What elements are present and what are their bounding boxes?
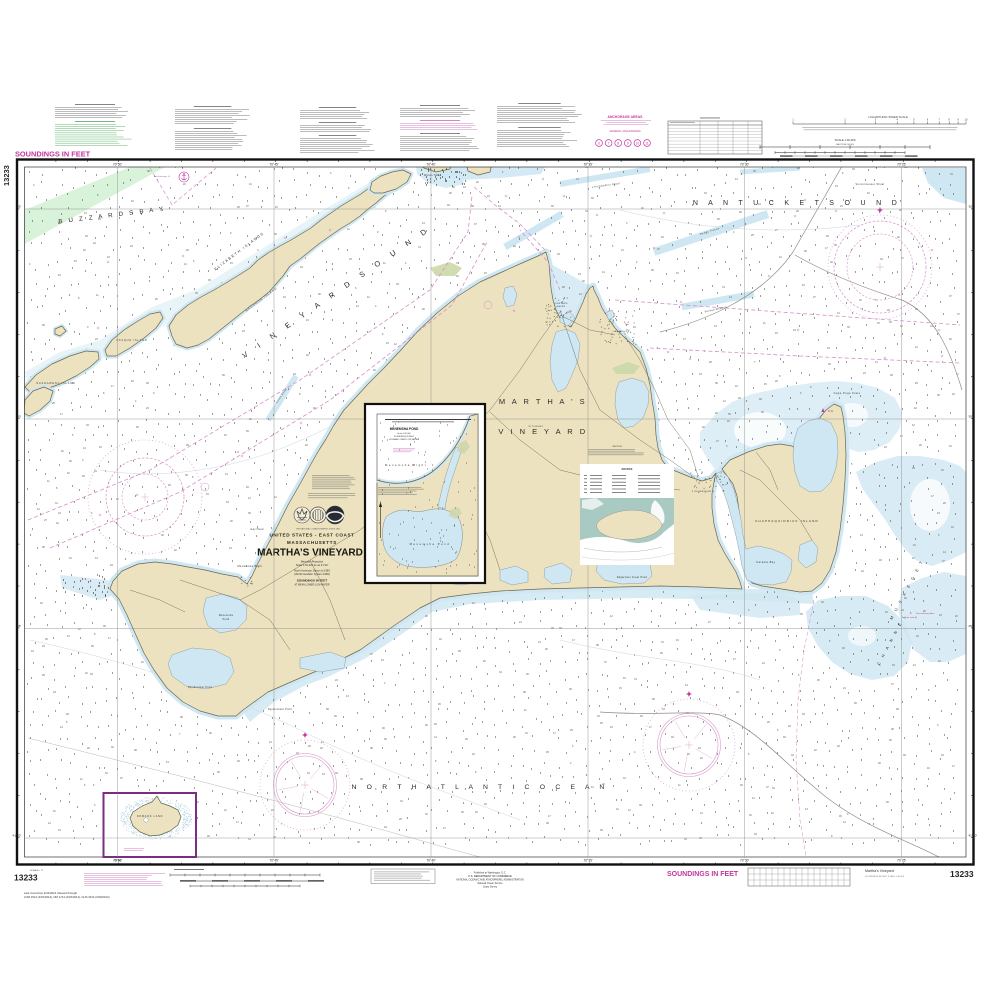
svg-text:SOURCE: SOURCE: [621, 467, 632, 471]
svg-text:(World Geodetic System 1984): (World Geodetic System 1984): [294, 572, 330, 576]
svg-text:UNITED STATES - EAST COAST: UNITED STATES - EAST COAST: [269, 533, 354, 538]
svg-text:25': 25': [17, 624, 21, 628]
svg-text:Woods Hole: Woods Hole: [424, 174, 440, 177]
svg-text:Menemsha Pond: Menemsha Pond: [410, 542, 451, 546]
svg-text:Succonnesset Shoal: Succonnesset Shoal: [856, 183, 885, 186]
svg-text:41°20': 41°20': [13, 834, 22, 838]
svg-text:PASQUE ISLAND: PASQUE ISLAND: [116, 338, 147, 342]
svg-text:CHAPPAQUIDDICK ISLAND: CHAPPAQUIDDICK ISLAND: [755, 519, 819, 523]
svg-text:70°45': 70°45': [270, 163, 279, 167]
svg-text:W TISBURY: W TISBURY: [529, 426, 544, 428]
svg-text:9: 9: [627, 141, 629, 145]
svg-text:HAVEN: HAVEN: [557, 305, 566, 308]
svg-text:GENERAL ANCHORAGES: GENERAL ANCHORAGES: [609, 129, 641, 133]
svg-text:SCALE 1:40,000: SCALE 1:40,000: [835, 138, 856, 142]
svg-text:70°45': 70°45': [270, 859, 279, 863]
svg-text:V I N E Y A R D: V I N E Y A R D: [498, 427, 587, 436]
svg-text:Gay Head: Gay Head: [250, 528, 264, 531]
svg-text:Edgartown Great Pond: Edgartown Great Pond: [617, 576, 648, 579]
svg-text:70°25': 70°25': [897, 859, 906, 863]
svg-text:VINEYARD: VINEYARD: [554, 302, 568, 305]
svg-text:AT MEAN LOWER LOW WATER: AT MEAN LOWER LOW WATER: [389, 438, 419, 441]
svg-text:ANCHORAGE AREAS: ANCHORAGE AREAS: [608, 115, 644, 119]
svg-text:7: 7: [608, 141, 610, 145]
svg-text:30': 30': [17, 415, 21, 419]
svg-text:SOUNDINGS IN FEET: SOUNDINGS IN FEET: [394, 436, 415, 438]
svg-text:Martha’s Vineyard: Martha’s Vineyard: [865, 869, 894, 873]
svg-text:13233: 13233: [950, 869, 974, 879]
svg-text:Coast Survey: Coast Survey: [483, 886, 498, 889]
svg-text:Mercator Projection: Mercator Projection: [301, 560, 324, 564]
svg-text:70°50': 70°50': [113, 163, 122, 167]
svg-text:M A R T H A ' S: M A R T H A ' S: [499, 397, 587, 406]
svg-text:70°35': 70°35': [584, 859, 593, 863]
svg-text:Menemsha: Menemsha: [219, 614, 234, 617]
svg-text:NOMANS LAND: NOMANS LAND: [137, 815, 163, 818]
svg-text:U.S. DEPARTMENT OF COMMERCE: U.S. DEPARTMENT OF COMMERCE: [468, 874, 512, 878]
svg-text:SOUNDINGS IN FEET: SOUNDINGS IN FEET: [297, 579, 328, 583]
svg-text:70°49’: 70°49’: [114, 859, 122, 863]
svg-text:25': 25': [969, 624, 973, 628]
svg-text:Cape Poge Flats: Cape Poge Flats: [834, 391, 861, 395]
svg-text:Menemsha Bight: Menemsha Bight: [385, 463, 427, 467]
svg-text:Squibnocket Point: Squibnocket Point: [268, 708, 292, 711]
svg-text:70°40': 70°40': [427, 163, 436, 167]
svg-text:(see note A): (see note A): [905, 616, 917, 619]
svg-text:MASSACHUSETTS: MASSACHUSETTS: [287, 540, 337, 545]
svg-text:70°35': 70°35': [584, 163, 593, 167]
svg-text:N O R T H A T L A N T I C: N O R T H A T L A N T I C O C E A N: [351, 784, 608, 791]
svg-text:11: 11: [645, 141, 649, 145]
svg-text:SOUNDINGS IN FEET: SOUNDINGS IN FEET: [15, 150, 91, 159]
svg-text:Squibnocket Pond: Squibnocket Pond: [188, 686, 213, 689]
svg-text:Katama Bay: Katama Bay: [756, 560, 775, 564]
svg-text:35': 35': [17, 205, 21, 209]
svg-text:Scale 1:20,000: Scale 1:20,000: [397, 433, 411, 435]
svg-text:SOUNDINGS IN FEET SCALE 1:40,: SOUNDINGS IN FEET SCALE 1:40,000: [865, 875, 905, 878]
svg-text:Anchorage G: Anchorage G: [154, 175, 170, 178]
svg-text:MARTHA’S VINEYARD: MARTHA’S VINEYARD: [257, 548, 363, 559]
svg-text:70°40': 70°40': [427, 859, 436, 863]
svg-text:Pond: Pond: [223, 618, 230, 621]
svg-text:AT MEAN LOWER LOW WATER: AT MEAN LOWER LOW WATER: [295, 584, 330, 587]
svg-text:Precautionary Area: Precautionary Area: [916, 612, 935, 615]
svg-text:8: 8: [617, 141, 619, 145]
svg-text:41°20': 41°20': [969, 834, 978, 838]
svg-text:OAK BLUFFS: OAK BLUFFS: [613, 330, 630, 333]
svg-text:70°30': 70°30': [740, 163, 749, 167]
svg-text:10: 10: [636, 141, 640, 145]
svg-text:30': 30': [969, 415, 973, 419]
svg-text:THE NATIONAL OCEANOGRAPHIC SIN: THE NATIONAL OCEANOGRAPHIC SINCE 1807: [296, 528, 341, 531]
svg-text:Menemsha Bight: Menemsha Bight: [237, 564, 262, 568]
svg-text:NASHAWENA ISLAND: NASHAWENA ISLAND: [36, 381, 75, 385]
svg-text:13233: 13233: [2, 165, 11, 186]
svg-text:SOUNDINGS IN FEET: SOUNDINGS IN FEET: [667, 871, 739, 878]
svg-text:70°30': 70°30': [740, 859, 749, 863]
svg-text:6: 6: [598, 141, 600, 145]
svg-text:EDGARTOWN: EDGARTOWN: [694, 490, 711, 493]
svg-text:Scale 1:40,426 at Lat 41°22’: Scale 1:40,426 at Lat 41°22’: [296, 563, 329, 567]
svg-text:35': 35': [969, 205, 973, 209]
svg-text:NAUTICAL MILES: NAUTICAL MILES: [836, 143, 854, 146]
svg-text:N A N T U C K E T S O U N D: N A N T U C K E T S O U N D: [693, 200, 901, 207]
svg-text:13233: 13233: [14, 873, 38, 883]
svg-text:Fl 6s: Fl 6s: [828, 410, 834, 413]
svg-text:LNM 1514 (4/15/2014), NM 171: LNM 1514 (4/15/2014), NM 1714 (4/26/2014…: [24, 895, 110, 899]
svg-text:70°25': 70°25': [897, 163, 906, 167]
svg-text:MENEMSHA POND: MENEMSHA POND: [390, 427, 419, 431]
svg-text:CAUTION: CAUTION: [612, 445, 622, 448]
svg-text:North American Datum of 1983: North American Datum of 1983: [294, 569, 330, 573]
